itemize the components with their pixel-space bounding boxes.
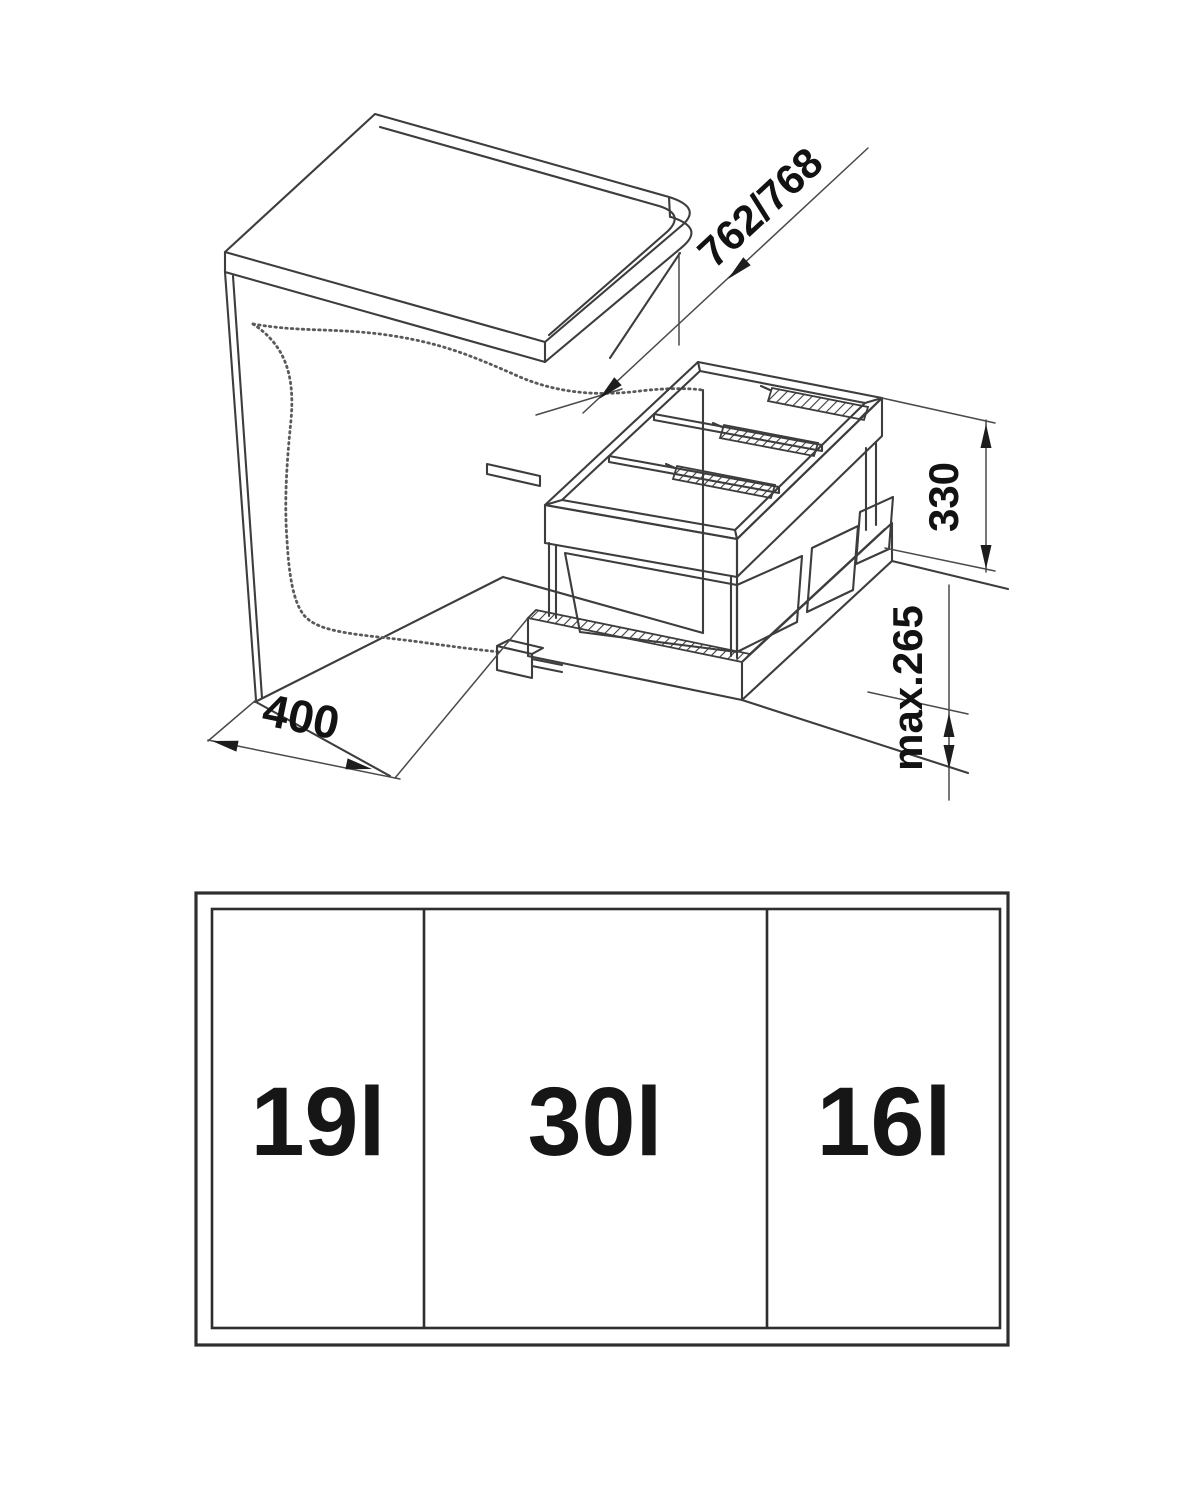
frame-outer-ring <box>545 362 882 539</box>
arrowhead-left <box>212 741 239 752</box>
cabinet-front-left-edge <box>225 272 262 700</box>
arrowhead-up <box>981 424 992 448</box>
extension-line-top <box>882 398 995 423</box>
bin-handle-front <box>673 466 775 498</box>
top-view-schematic: 19l 30l 16l <box>196 893 1008 1345</box>
base-platform-hatch-band <box>528 610 750 662</box>
bin-back-right-face <box>856 497 893 564</box>
handle-hooks <box>666 386 770 468</box>
dimension-label-bin-height: 330 <box>920 462 967 532</box>
waste-bin-unit <box>497 362 1008 773</box>
cutaway-break-line-top <box>253 324 702 393</box>
dimension-label-max-height: max.265 <box>884 605 931 771</box>
drawer-side-rail <box>487 464 540 486</box>
worktop-edge-joins <box>225 197 670 362</box>
dimension-depth-762-768: 762/768 <box>536 138 868 415</box>
dimension-bin-height-330: 330 <box>882 398 995 572</box>
cabinet-right-panel-edge <box>610 253 680 358</box>
compartment-label-19l: 19l <box>251 1067 386 1176</box>
floor-rail-bracket <box>497 640 562 678</box>
arrowhead-down <box>981 545 992 569</box>
compartment-label-30l: 30l <box>528 1067 663 1176</box>
page: 762/768 330 max.265 400 19l 30l 16l <box>0 0 1200 1488</box>
compartment-label-16l: 16l <box>817 1067 952 1176</box>
dimension-label-depth: 762/768 <box>689 138 832 276</box>
dimension-label-width: 400 <box>258 683 344 749</box>
floor-lines <box>742 561 1008 773</box>
arrowhead-up <box>944 713 955 737</box>
cutaway-break-line-left <box>253 324 500 652</box>
bin-handle-middle <box>720 425 818 456</box>
extension-line-bottom <box>885 548 995 571</box>
worktop-nose-edge <box>380 127 675 335</box>
dimension-line <box>583 148 868 413</box>
technical-diagram: 762/768 330 max.265 400 19l 30l 16l <box>0 0 1200 1488</box>
extension-line-left <box>208 700 256 741</box>
